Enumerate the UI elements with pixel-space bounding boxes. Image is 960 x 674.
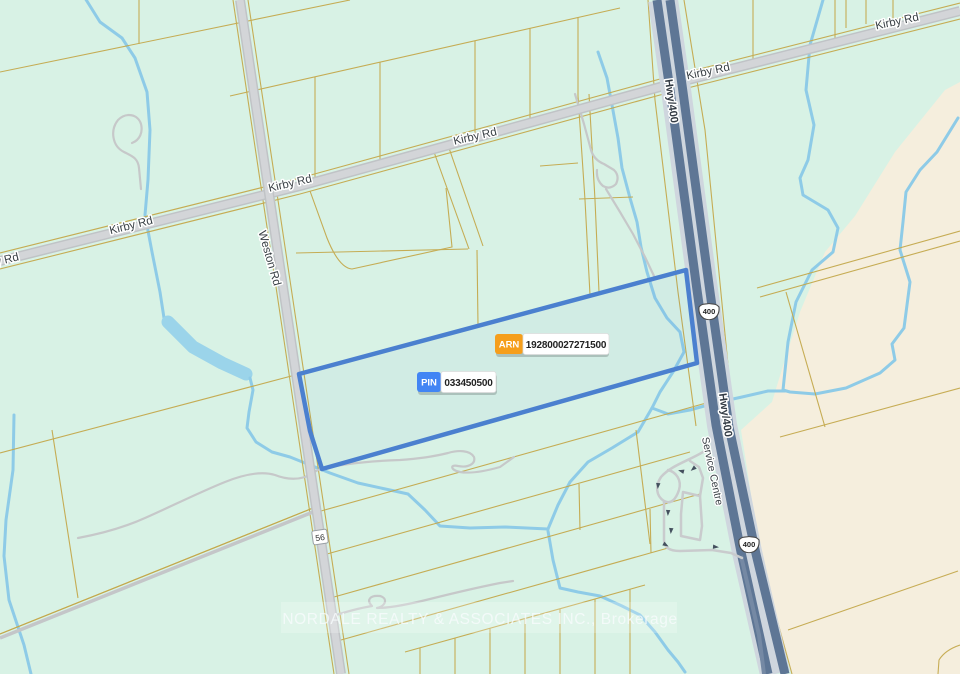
- map-canvas[interactable]: y Rd Kirby Rd Kirby Rd Kirby Rd Kirby Rd…: [0, 0, 960, 674]
- hwy-shield-400: 400: [739, 537, 759, 553]
- brokerage-watermark: NORDALE REALTY & ASSOCIATES INC., Broker…: [281, 602, 678, 633]
- regional-road-56-text: 56: [315, 532, 326, 543]
- hwy-shield-400-text: 400: [703, 307, 716, 316]
- brokerage-watermark-text: NORDALE REALTY & ASSOCIATES INC., Broker…: [282, 611, 677, 628]
- pin-badge-value: 033450500: [444, 378, 493, 389]
- hwy-shield-400: 400: [699, 304, 719, 320]
- pin-badge-label: PIN: [421, 378, 437, 389]
- hwy-shield-400-text: 400: [743, 540, 756, 549]
- arn-badge[interactable]: ARN 192800027271500: [495, 334, 609, 358]
- regional-road-56-shield: 56: [312, 529, 329, 545]
- arn-badge-label: ARN: [499, 340, 520, 351]
- pin-badge[interactable]: PIN 033450500: [417, 372, 497, 396]
- arn-badge-value: 192800027271500: [526, 340, 607, 351]
- map-viewport[interactable]: y Rd Kirby Rd Kirby Rd Kirby Rd Kirby Rd…: [0, 0, 960, 674]
